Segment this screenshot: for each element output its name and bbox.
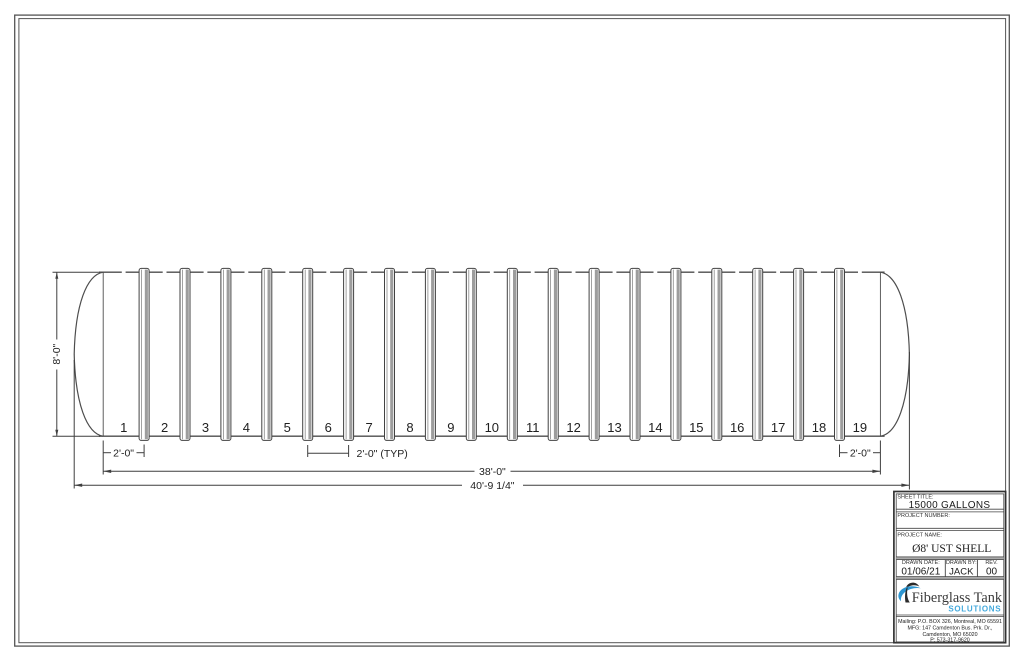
svg-text:2'-0" (TYP): 2'-0" (TYP) xyxy=(357,448,408,460)
svg-text:10: 10 xyxy=(485,420,499,435)
svg-text:P: 573-317-9620: P: 573-317-9620 xyxy=(930,637,970,643)
svg-text:SOLUTIONS: SOLUTIONS xyxy=(948,604,1001,613)
svg-text:13: 13 xyxy=(607,420,621,435)
svg-text:12: 12 xyxy=(566,420,580,435)
svg-text:38'-0": 38'-0" xyxy=(479,466,506,478)
svg-text:15: 15 xyxy=(689,420,703,435)
svg-text:11: 11 xyxy=(526,420,540,435)
svg-text:18: 18 xyxy=(812,420,826,435)
svg-text:15000 GALLONS: 15000 GALLONS xyxy=(909,500,991,511)
svg-text:8'-0": 8'-0" xyxy=(51,343,63,364)
svg-text:2'-0": 2'-0" xyxy=(850,447,871,459)
svg-text:14: 14 xyxy=(648,420,662,435)
svg-text:2'-0": 2'-0" xyxy=(113,447,134,459)
svg-text:6: 6 xyxy=(325,420,332,435)
svg-text:2: 2 xyxy=(161,420,168,435)
svg-text:4: 4 xyxy=(243,420,250,435)
svg-text:9: 9 xyxy=(447,420,454,435)
svg-text:17: 17 xyxy=(771,420,785,435)
svg-text:40'-9 1/4": 40'-9 1/4" xyxy=(470,480,515,492)
svg-text:REV.: REV. xyxy=(985,560,998,566)
svg-text:5: 5 xyxy=(284,420,291,435)
svg-text:DRAWN BY:: DRAWN BY: xyxy=(946,560,977,566)
svg-text:JACK: JACK xyxy=(949,566,974,577)
svg-text:00: 00 xyxy=(986,566,998,577)
svg-text:MFG: 147 Camdenton Bus. Prk. D: MFG: 147 Camdenton Bus. Prk. Dr., xyxy=(907,626,992,632)
svg-text:19: 19 xyxy=(853,420,867,435)
svg-text:Ø8' UST SHELL: Ø8' UST SHELL xyxy=(912,543,991,555)
svg-text:Mailing: P.O. BOX 326, Montrea: Mailing: P.O. BOX 326, Montreal, MO 6559… xyxy=(898,619,1002,625)
svg-text:3: 3 xyxy=(202,420,209,435)
svg-text:PROJECT NUMBER:: PROJECT NUMBER: xyxy=(897,513,950,519)
svg-text:DRAWN DATE:: DRAWN DATE: xyxy=(902,560,940,566)
svg-text:PROJECT NAME:: PROJECT NAME: xyxy=(897,532,942,538)
svg-text:8: 8 xyxy=(406,420,413,435)
svg-text:16: 16 xyxy=(730,420,744,435)
svg-text:01/06/21: 01/06/21 xyxy=(901,566,940,577)
svg-text:1: 1 xyxy=(120,420,127,435)
svg-text:7: 7 xyxy=(365,420,372,435)
